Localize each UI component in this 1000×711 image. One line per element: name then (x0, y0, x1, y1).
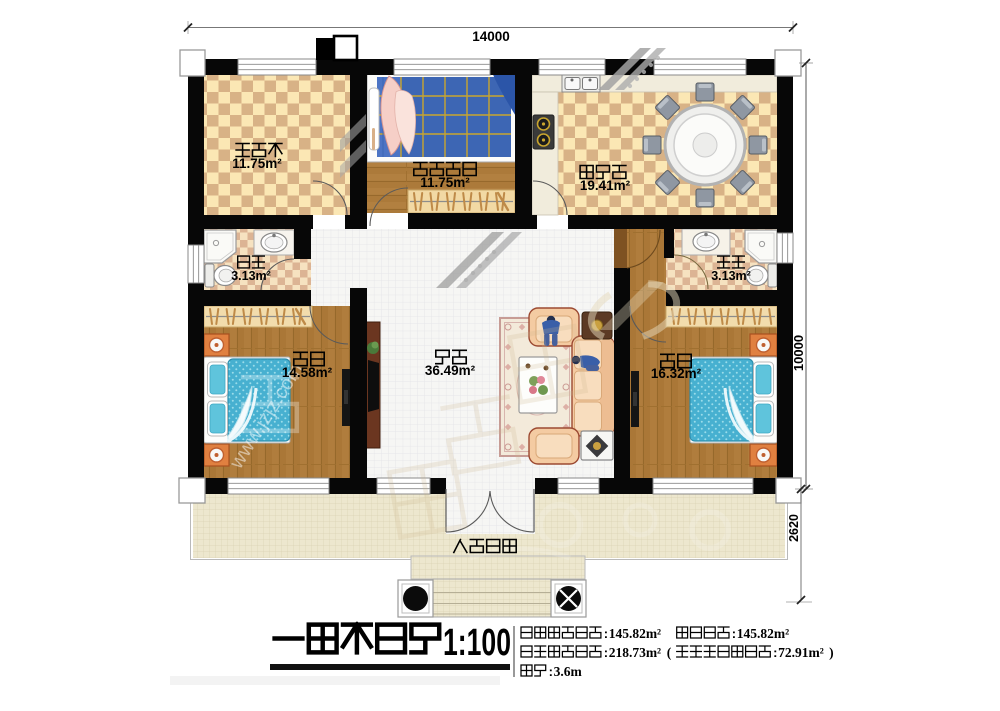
svg-text:(: ( (667, 645, 672, 660)
svg-text::: : (549, 664, 553, 679)
svg-text:14.58m²: 14.58m² (282, 365, 333, 380)
svg-text:218.73m²: 218.73m² (609, 645, 661, 660)
svg-text:): ) (829, 645, 834, 660)
svg-text:11.75m²: 11.75m² (232, 156, 282, 171)
svg-text:1:100: 1:100 (443, 622, 511, 664)
svg-text::: : (732, 626, 736, 641)
svg-text:2620: 2620 (787, 514, 801, 542)
svg-text:3.13m²: 3.13m² (711, 269, 751, 283)
svg-text:19.41m²: 19.41m² (580, 178, 631, 193)
svg-text:72.91m²: 72.91m² (778, 645, 824, 660)
svg-text:3.6m: 3.6m (554, 664, 583, 679)
svg-text:11.75m²: 11.75m² (420, 175, 470, 190)
svg-text:3.13m²: 3.13m² (231, 269, 271, 283)
svg-text::: : (604, 645, 608, 660)
svg-text:145.82m²: 145.82m² (609, 626, 661, 641)
svg-text:36.49m²: 36.49m² (425, 363, 476, 378)
svg-text:14000: 14000 (472, 29, 510, 44)
svg-text:16.32m²: 16.32m² (651, 366, 702, 381)
svg-text::: : (773, 645, 777, 660)
svg-text:10000: 10000 (791, 335, 806, 371)
svg-text:145.82m²: 145.82m² (737, 626, 789, 641)
svg-text::: : (604, 626, 608, 641)
